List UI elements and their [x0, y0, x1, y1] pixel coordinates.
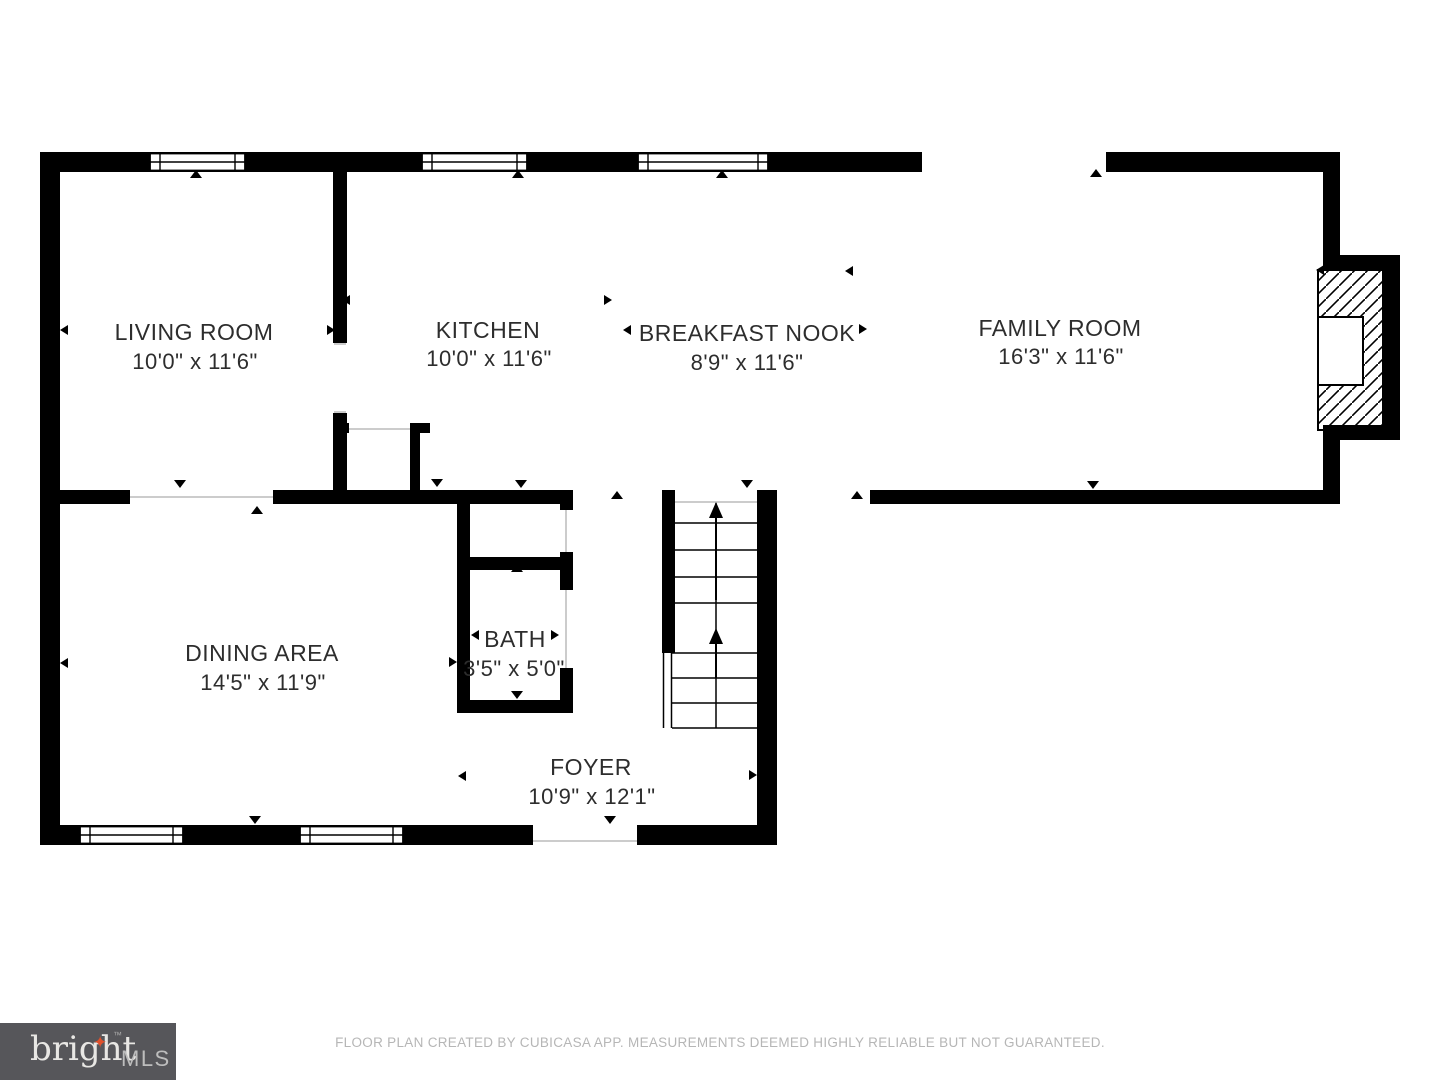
- wall-bath-mid: [457, 557, 563, 570]
- room-dims-dining-area: 14'5" x 11'9": [200, 670, 326, 695]
- wall-family-right-upper: [1323, 152, 1340, 270]
- wall-foyer-right: [757, 490, 777, 845]
- wall-living-dining-left: [40, 490, 130, 504]
- window: [638, 154, 768, 171]
- marker-up-family-top: [1090, 169, 1102, 177]
- marker-down-dining-bottom: [249, 816, 261, 824]
- marker-down-living-bottom: [174, 480, 186, 488]
- wall-bump-outer: [1383, 255, 1400, 440]
- wall-mid: [273, 490, 573, 504]
- marker-left-family: [845, 266, 853, 276]
- marker-down-kitchen-bottom: [515, 480, 527, 488]
- marker-left-bath: [471, 630, 479, 640]
- marker-down-family-bottom: [1087, 481, 1099, 489]
- window: [150, 154, 245, 171]
- wall-family-bottom: [870, 490, 1340, 504]
- room-dims-family-room: 16'3" x 11'6": [998, 344, 1124, 369]
- wall-bath-bottom: [457, 700, 573, 713]
- wall-bath-right-a: [560, 490, 573, 510]
- room-dims-kitchen: 10'0" x 11'6": [426, 346, 552, 371]
- marker-left-breakfast: [623, 325, 631, 335]
- window: [300, 827, 403, 844]
- floor-plan-page: LIVING ROOM 10'0" x 11'6" KITCHEN 10'0" …: [0, 0, 1440, 1080]
- walls: [40, 152, 1400, 845]
- room-label-bath: BATH: [484, 626, 546, 652]
- wall-pantry-right: [410, 433, 420, 504]
- fireplace-firebox: [1318, 317, 1363, 385]
- wall-stairs-left: [662, 490, 675, 653]
- floor-plan-canvas: LIVING ROOM 10'0" x 11'6" KITCHEN 10'0" …: [0, 0, 1440, 1080]
- window: [80, 827, 183, 844]
- marker-down-pantry: [431, 479, 443, 487]
- room-label-breakfast-nook: BREAKFAST NOOK: [639, 320, 855, 346]
- wall-kitchen-left-lower: [333, 413, 347, 504]
- room-label-living-room: LIVING ROOM: [115, 319, 274, 345]
- footer-disclaimer: FLOOR PLAN CREATED BY CUBICASA APP. MEAS…: [0, 1035, 1440, 1050]
- room-label-kitchen: KITCHEN: [436, 317, 540, 343]
- room-dims-breakfast-nook: 8'9" x 11'6": [691, 350, 804, 375]
- marker-down-stairs-top: [741, 480, 753, 488]
- wall-pantry-top: [410, 423, 430, 433]
- marker-down-front-door: [604, 816, 616, 824]
- marker-down-bath-bottom: [511, 691, 523, 699]
- marker-up-breakfast-passage: [851, 491, 863, 499]
- room-label-family-room: FAMILY ROOM: [978, 315, 1141, 341]
- room-dims-living-room: 10'0" x 11'6": [132, 349, 258, 374]
- wall-pantry-stub: [345, 423, 349, 433]
- marker-left-foyer: [458, 771, 466, 781]
- marker-right-breakfast: [859, 324, 867, 334]
- room-dims-bath: 3'5" x 5'0": [463, 656, 565, 681]
- wall-kitchen-left-upper: [333, 172, 347, 343]
- wall-bath-right-b: [560, 552, 573, 590]
- fireplace: [1318, 270, 1383, 430]
- stairs-up-arrow-head: [709, 502, 723, 518]
- wall-top-right: [1106, 152, 1340, 172]
- stairs-up-arrow-head: [709, 628, 723, 644]
- marker-right-kitchen: [604, 295, 612, 305]
- room-dims-foyer: 10'9" x 12'1": [528, 784, 655, 809]
- marker-left-living: [60, 325, 68, 335]
- room-labels: LIVING ROOM 10'0" x 11'6" KITCHEN 10'0" …: [115, 315, 1142, 809]
- wall-bottom-right: [637, 825, 777, 845]
- staircase: [664, 502, 758, 728]
- marker-up-dining-top: [251, 506, 263, 514]
- marker-right-dining: [449, 657, 457, 667]
- window: [422, 154, 527, 171]
- wall-bath-left: [457, 504, 470, 713]
- marker-right-foyer: [749, 770, 757, 780]
- brightmls-logo: bright ✦ ™ MLS: [0, 1023, 176, 1080]
- room-label-foyer: FOYER: [550, 754, 632, 780]
- marker-left-dining: [60, 658, 68, 668]
- room-label-dining-area: DINING AREA: [185, 640, 339, 666]
- marker-up-foyer-top: [611, 491, 623, 499]
- marker-right-bath: [551, 630, 559, 640]
